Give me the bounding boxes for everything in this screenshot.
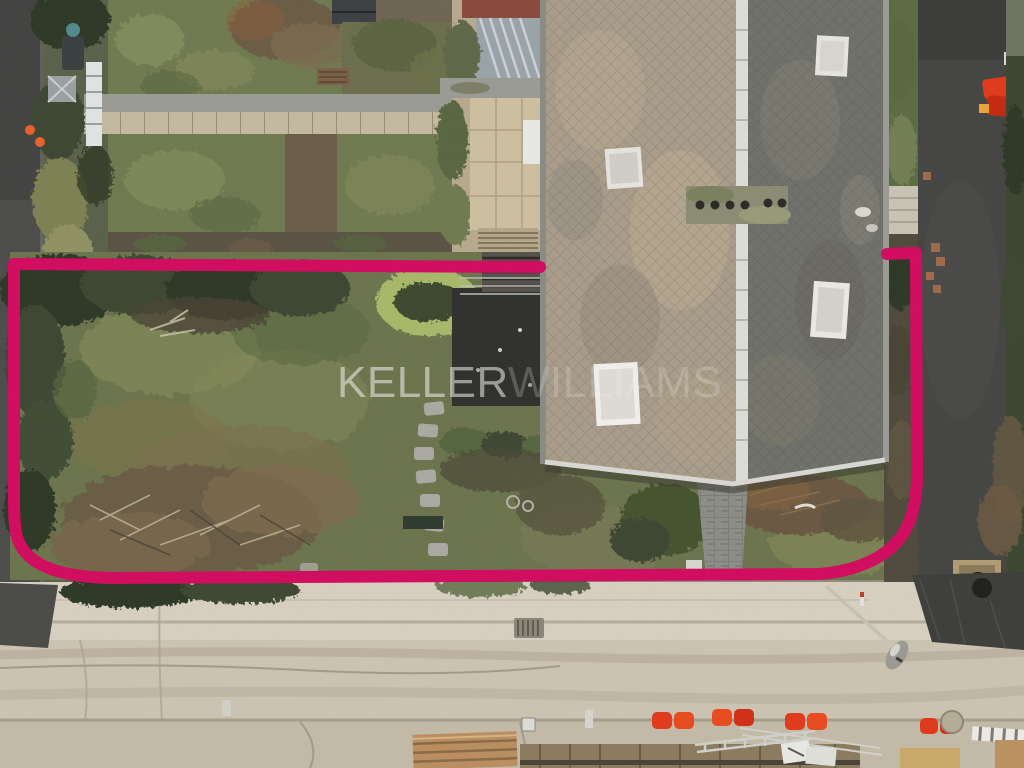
aerial-photo: KELLERWILLIAMS: [0, 0, 1024, 768]
photo-grain-overlay: [0, 0, 1024, 768]
aerial-photo-listing: KELLERWILLIAMS: [0, 0, 1024, 768]
